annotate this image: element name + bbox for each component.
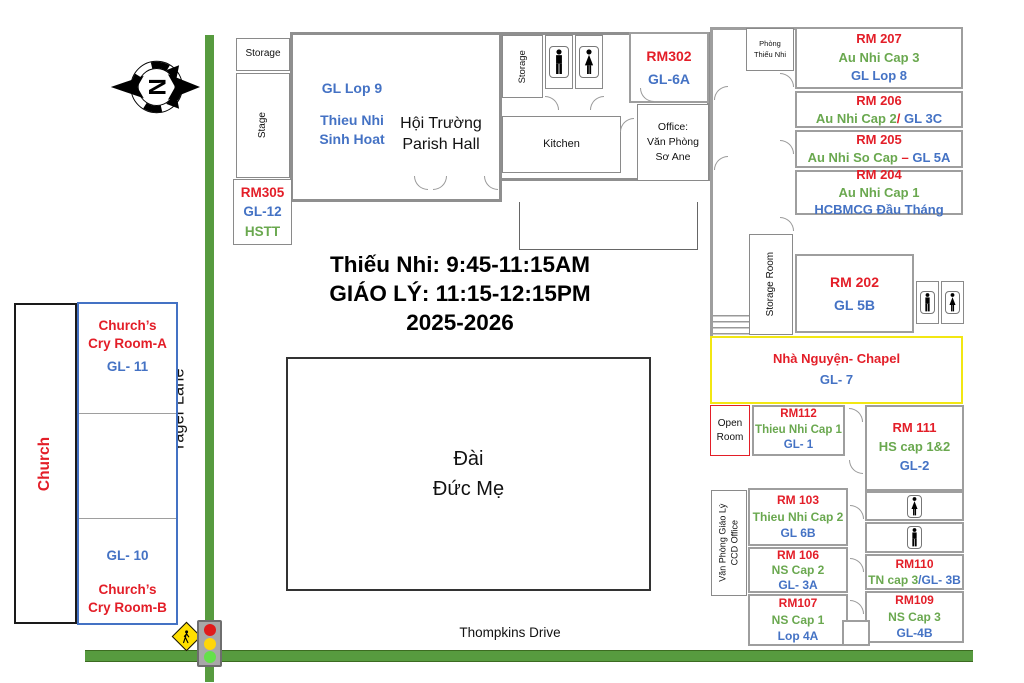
restroom-male-low [865, 522, 964, 553]
room-rm206: RM 206 Au Nhi Cap 2/ GL 3C [795, 91, 963, 128]
kitchen-room: Kitchen [502, 116, 621, 173]
door-arc [850, 505, 864, 519]
chapel-room: Nhà Nguyện- Chapel GL- 7 [710, 336, 963, 404]
rm206-gl: GL 3C [900, 111, 942, 126]
rm112-gl: GL- 1 [784, 438, 813, 454]
office-line2: Văn Phòng [647, 135, 699, 150]
yager-lane-road [205, 35, 214, 682]
schedule-title: Thiếu Nhi: 9:45-11:15AM GIÁO LÝ: 11:15-1… [255, 250, 665, 337]
schedule-line2: GIÁO LÝ: 11:15-12:15PM [255, 279, 665, 308]
room-rm205: RM 205 Au Nhi So Cap – GL 5A [795, 130, 963, 168]
cry-room-a-line1: Church’s [79, 317, 176, 335]
rm204-group: Au Nhi Cap 1 [839, 184, 920, 202]
rm305-gl: GL-12 [243, 202, 281, 222]
rm205-number: RM 205 [856, 131, 902, 149]
rm305-extra: HSTT [245, 222, 280, 242]
compass-n-label: N [143, 78, 170, 95]
door-arc [780, 217, 794, 231]
storage-side-label: Storage [517, 50, 529, 83]
rm205-gl: GL 5A [912, 150, 950, 165]
rm109-gl: GL-4B [897, 625, 933, 642]
office-line3: Sơ Ane [656, 150, 691, 165]
female-restroom-icon [945, 291, 960, 314]
rm204-gl: HCBMCG Đầu Tháng [814, 201, 943, 219]
compass-star [168, 74, 200, 100]
restroom-female-low [865, 491, 964, 521]
rm107-number: RM107 [779, 595, 818, 612]
door-arc [850, 600, 864, 614]
church-label: Church [37, 436, 55, 490]
shrine-line1: Đài [453, 444, 483, 474]
room-rm106: RM 106 NS Cap 2 GL- 3A [748, 547, 848, 593]
male-restroom-icon [549, 46, 569, 78]
rm112-number: RM112 [780, 407, 816, 423]
restroom-female-mid [941, 281, 964, 324]
cry-room-b-line1: Church’s [79, 581, 176, 599]
vp-office-line1: Văn Phòng Giáo Lý [717, 504, 729, 582]
rm207-group: Au Nhi Cap 3 [839, 49, 920, 68]
traffic-light-red [204, 624, 216, 636]
schedule-line3: 2025-2026 [255, 308, 665, 337]
open-room-line2: Room [717, 431, 744, 445]
van-phong-giao-ly-office: Văn Phòng Giáo Lý CCD Office [711, 490, 747, 596]
rm110-group: TN cap 3 [868, 573, 918, 587]
door-arc [780, 73, 794, 87]
room-rm103: RM 103 Thieu Nhi Cap 2 GL 6B [748, 488, 848, 546]
hall-name-line2: Parish Hall [383, 135, 499, 156]
kitchen-label: Kitchen [543, 138, 580, 151]
compass-rose: N [110, 48, 200, 126]
compass-arrow [111, 76, 144, 99]
door-arc [714, 156, 728, 170]
rm111-number: RM 111 [892, 419, 936, 438]
office-line1: Office: [658, 120, 688, 135]
restroom-male-main [545, 35, 573, 89]
room-rm111: RM 111 HS cap 1&2 GL-2 [865, 405, 964, 491]
schedule-line1: Thiếu Nhi: 9:45-11:15AM [255, 250, 665, 279]
cry-room-b: GL- 10 Church’s Cry Room-B [79, 519, 176, 623]
rm109-number: RM109 [895, 592, 934, 609]
door-arc [780, 140, 794, 154]
rm206-group: Au Nhi Cap 2 [816, 111, 897, 126]
male-restroom-icon [920, 291, 935, 314]
cry-room-a-line2: Cry Room-A [79, 335, 176, 353]
cry-room-a: Church’s Cry Room-A GL- 11 [79, 304, 176, 414]
rm207-number: RM 207 [856, 30, 902, 49]
room-rm207: RM 207 Au Nhi Cap 3 GL Lop 8 [795, 27, 963, 89]
wing-corridor-wall [710, 27, 713, 338]
restroom-male-mid [916, 281, 939, 324]
traffic-light-green [204, 651, 216, 663]
stage-room: Stage [236, 73, 290, 178]
rm302-gl: GL-6A [648, 68, 690, 90]
room-rm107: RM107 NS Cap 1 Lop 4A [748, 594, 848, 646]
rm107-gl: Lop 4A [778, 628, 819, 645]
rm103-gl: GL 6B [780, 525, 815, 542]
rm305-number: RM305 [241, 183, 285, 203]
room-rm109: RM109 NS Cap 3 GL-4B [865, 591, 964, 643]
vp-office-label: Văn Phòng Giáo Lý CCD Office [717, 504, 740, 582]
phong-line2: Thiếu Nhi [754, 50, 786, 61]
chapel-name: Nhà Nguyện- Chapel [773, 349, 900, 370]
rm206-number: RM 206 [856, 92, 902, 110]
room-rm204: RM 204 Au Nhi Cap 1 HCBMCG Đầu Tháng [795, 170, 963, 215]
cry-room-b-gl: GL- 10 [79, 547, 176, 565]
open-room: Open Room [710, 405, 750, 456]
stairs [713, 315, 749, 338]
room-rm110: RM110 TN cap 3/GL- 3B [865, 554, 964, 590]
vp-office-line2: CCD Office [729, 504, 741, 582]
shrine-line2: Đức Mẹ [433, 474, 504, 504]
rm112-group: Thieu Nhi Cap 1 [755, 423, 842, 439]
rm205-group: Au Nhi So Cap [808, 150, 898, 165]
door-arc [849, 408, 863, 422]
rm205-line: Au Nhi So Cap – GL 5A [808, 149, 951, 167]
rm107-group: NS Cap 1 [772, 612, 825, 629]
rm204-number: RM 204 [856, 166, 902, 184]
church-annex-middle-cell [79, 414, 176, 519]
door-arc [714, 86, 728, 100]
rm106-number: RM 106 [777, 548, 819, 563]
male-restroom-icon [907, 526, 922, 549]
room-rm305: RM305 GL-12 HSTT [233, 179, 292, 245]
rm207-gl: GL Lop 8 [851, 67, 907, 86]
female-restroom-icon [907, 495, 922, 518]
storage-room-label: Storage Room [765, 252, 777, 316]
rm111-group: HS cap 1&2 [879, 438, 951, 457]
female-restroom-icon [579, 46, 599, 78]
rm110-gl: /GL- 3B [918, 573, 961, 587]
pedestrian-icon [181, 630, 192, 644]
rm111-gl: GL-2 [900, 457, 930, 476]
hall-name-label: Hội Trường Parish Hall [383, 114, 499, 156]
chapel-gl: GL- 7 [820, 370, 853, 391]
rm106-gl: GL- 3A [778, 578, 817, 593]
rm103-number: RM 103 [777, 492, 819, 509]
rm109-group: NS Cap 3 [888, 609, 941, 626]
phong-line1: Phòng [759, 39, 781, 50]
storage-top-room: Storage [236, 38, 290, 71]
phong-thieu-nhi-room: Phòng Thiếu Nhi [746, 28, 794, 71]
rm202-gl: GL 5B [834, 294, 875, 316]
rm103-group: Thieu Nhi Cap 2 [753, 509, 844, 526]
traffic-light-yellow [204, 638, 216, 650]
office-so-ane-room: Office: Văn Phòng Sơ Ane [637, 104, 709, 181]
cry-room-b-line2: Cry Room-B [79, 599, 176, 617]
hall-gl-label: GL Lop 9 [296, 80, 408, 96]
rm202-number: RM 202 [830, 271, 879, 293]
church-building: Church [14, 303, 77, 624]
rm110-number: RM110 [895, 556, 933, 572]
entry-vestibule [842, 620, 870, 646]
church-annex: Church’s Cry Room-A GL- 11 GL- 10 Church… [77, 302, 178, 625]
traffic-light [197, 620, 222, 667]
storage-room: Storage Room [749, 234, 793, 335]
door-arc [849, 460, 863, 474]
walkway-outline [519, 202, 698, 250]
room-rm202: RM 202 GL 5B [795, 254, 914, 333]
thompkins-drive-label: Thompkins Drive [430, 625, 590, 640]
cry-room-a-gl: GL- 11 [79, 358, 176, 376]
restroom-female-main [575, 35, 603, 89]
storage-side-room: Storage [502, 35, 543, 98]
rm302-number: RM302 [646, 45, 691, 67]
door-arc [850, 558, 864, 572]
stage-label: Stage [257, 112, 269, 138]
hall-name-line1: Hội Trường [383, 114, 499, 135]
campus-map: Yager Lane Thompkins Drive N Church Chur… [0, 0, 1024, 683]
shrine-dai-duc-me: Đài Đức Mẹ [286, 357, 651, 591]
rm205-separator: – [898, 150, 912, 165]
rm110-line: TN cap 3/GL- 3B [868, 572, 961, 588]
rm206-line: Au Nhi Cap 2/ GL 3C [816, 110, 942, 128]
open-room-line1: Open [718, 417, 742, 431]
rm106-group: NS Cap 2 [772, 563, 825, 578]
room-rm112: RM112 Thieu Nhi Cap 1 GL- 1 [752, 405, 845, 456]
storage-top-label: Storage [245, 48, 280, 60]
